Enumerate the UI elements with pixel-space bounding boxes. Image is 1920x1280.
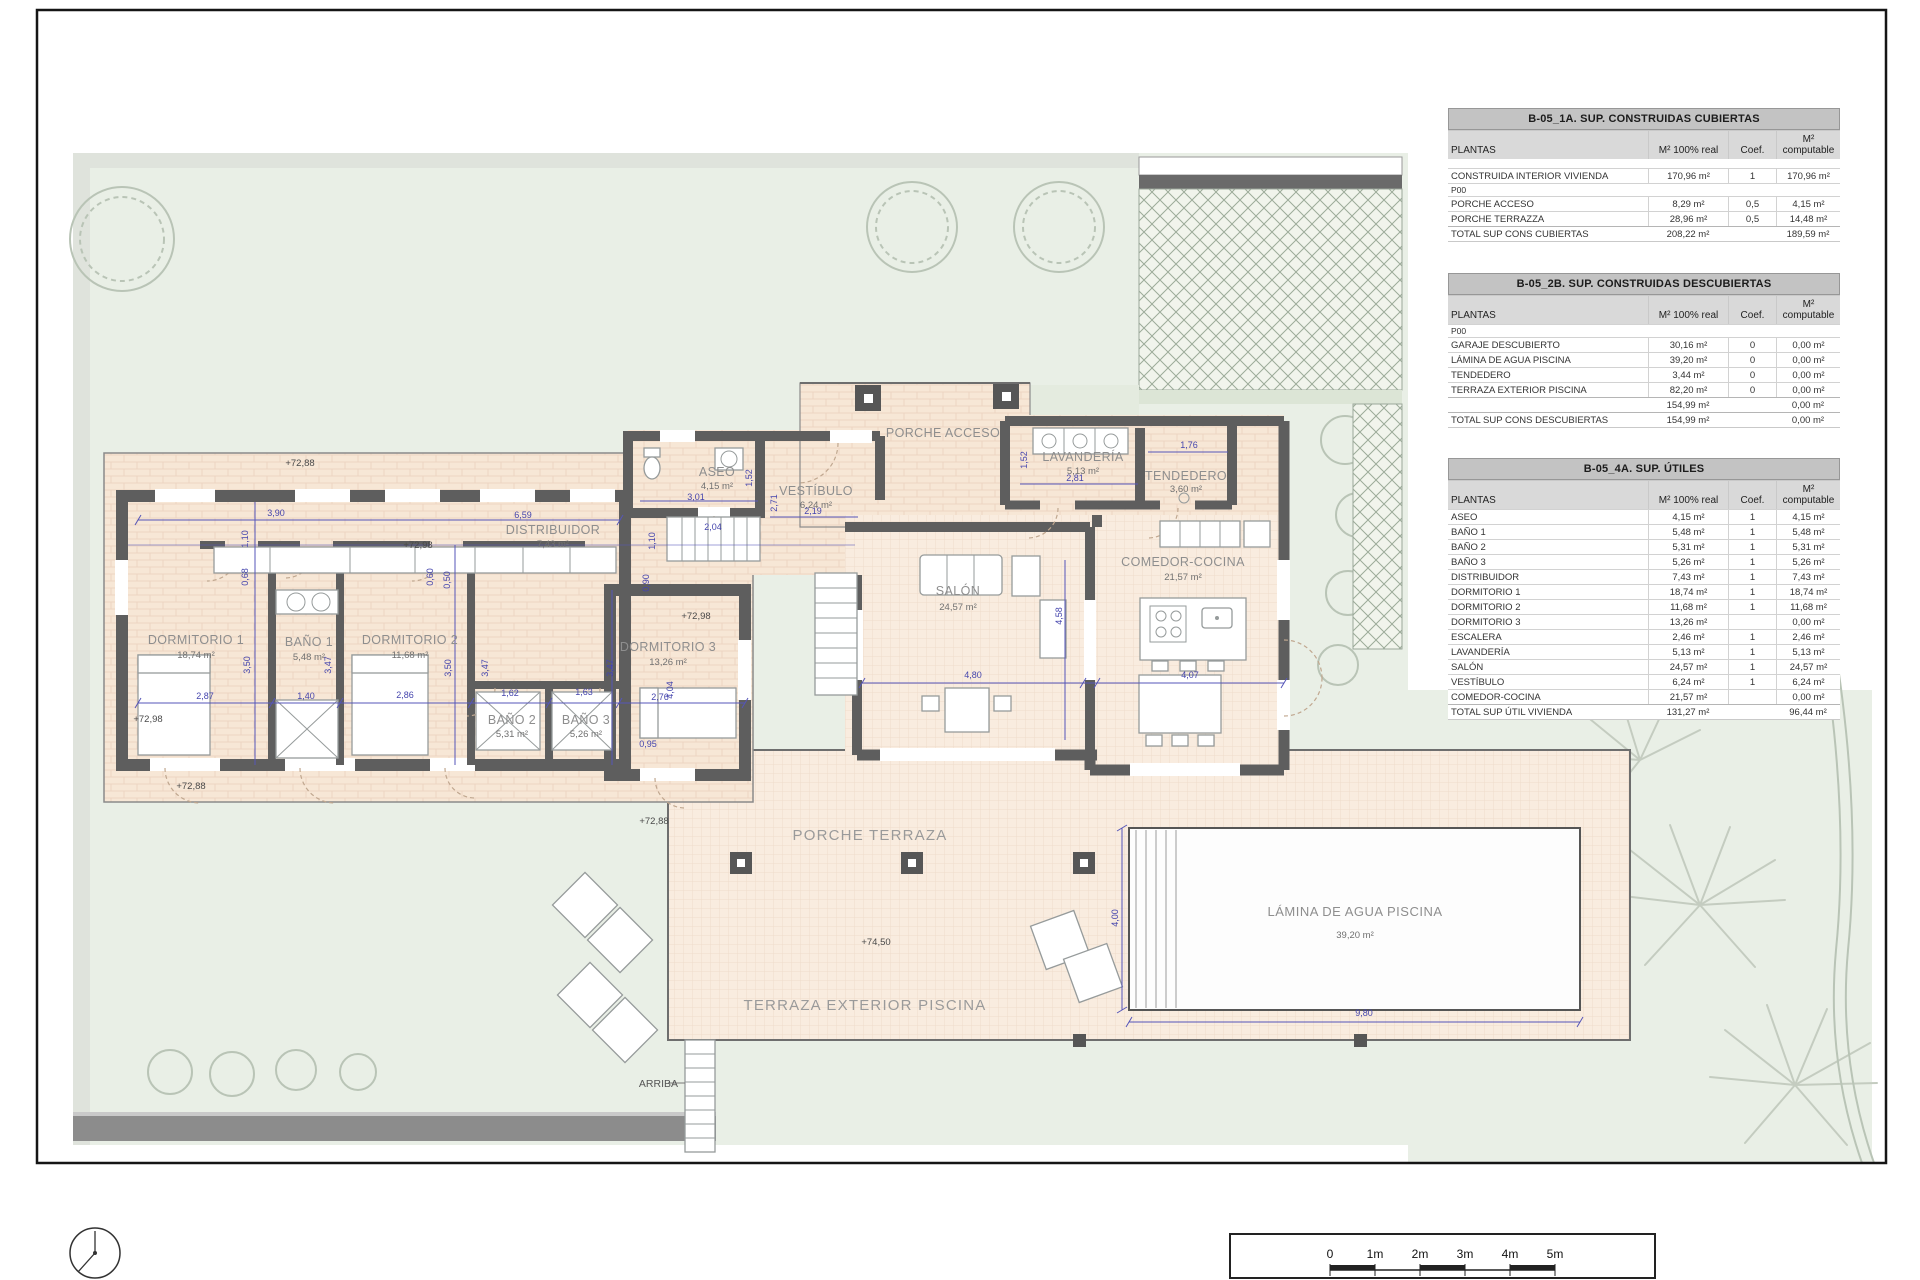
table-col-header: Coef.: [1728, 480, 1776, 509]
table-cell-label: [1448, 397, 1648, 412]
table-cell-coef: 1: [1728, 509, 1776, 524]
room-area-dormitorio2: 11,68 m²: [392, 650, 429, 661]
room-label-vestibulo: VESTÍBULO: [779, 483, 853, 498]
table-cell-label: BAÑO 1: [1448, 524, 1648, 539]
room-area-dormitorio3: 13,26 m²: [649, 657, 687, 668]
table-cell-real: 21,57 m²: [1648, 689, 1728, 704]
dim-label: 2,04: [704, 522, 722, 532]
table-cell-real: 131,27 m²: [1648, 704, 1728, 719]
architectural-sheet: DORMITORIO 1 18,74 m² BAÑO 1 5,48 m² DOR…: [0, 0, 1920, 1280]
table-cell-coef: 1: [1728, 659, 1776, 674]
level-label: +72,98: [681, 611, 710, 622]
table-cell-comp: 5,31 m²: [1776, 539, 1840, 554]
table-cell-coef: 0,5: [1728, 196, 1776, 211]
dim-label: 3,50: [443, 659, 453, 677]
dim-label: 1,52: [1019, 451, 1029, 469]
level-label: +72,98: [133, 714, 162, 725]
scale-bar: 0 1m 2m 3m 4m 5m: [1230, 1234, 1655, 1278]
table-col-header: M² 100% real: [1648, 295, 1728, 324]
table-cell-label: DISTRIBUIDOR: [1448, 569, 1648, 584]
table-cell-real: 39,20 m²: [1648, 352, 1728, 367]
table-body: PLANTAS M² 100% real Coef. M² computable…: [1448, 295, 1840, 428]
table-cell-coef: [1728, 397, 1776, 412]
table-cell-comp: 0,00 m²: [1776, 337, 1840, 352]
table-cell-label: ESCALERA: [1448, 629, 1648, 644]
table-spacer-row: [1448, 159, 1840, 168]
room-label-bano3: BAÑO 3: [562, 713, 610, 727]
table-cell-coef: 1: [1728, 599, 1776, 614]
table-cell-label: PORCHE ACCESO: [1448, 196, 1648, 211]
table-cell-coef: 1: [1728, 569, 1776, 584]
table-cell-comp: 0,00 m²: [1776, 352, 1840, 367]
room-label-tendedero: TENDEDERO: [1145, 469, 1227, 483]
dim-label: 1,10: [647, 532, 657, 550]
dim-label: 4,07: [1181, 670, 1199, 680]
table-cell-label: ASEO: [1448, 509, 1648, 524]
table-cell-real: 2,46 m²: [1648, 629, 1728, 644]
table-cell-comp: 18,74 m²: [1776, 584, 1840, 599]
table-cell-label: TOTAL SUP ÚTIL VIVIENDA: [1448, 704, 1648, 719]
table-col-header: M² computable: [1776, 480, 1840, 509]
table-cell-coef: 1: [1728, 644, 1776, 659]
dim-label: 3,47: [323, 656, 333, 674]
table-cell-label: LAVANDERÍA: [1448, 644, 1648, 659]
table-cell-label: PORCHE TERRAZZA: [1448, 211, 1648, 226]
room-area-bano1: 5,48 m²: [293, 652, 325, 663]
table-col-header: PLANTAS: [1448, 130, 1648, 159]
dim-label: 2,87: [196, 691, 214, 701]
room-label-bano2: BAÑO 2: [488, 713, 536, 727]
pool-area: 39,20 m²: [1336, 930, 1374, 941]
table-cell-real: 5,48 m²: [1648, 524, 1728, 539]
area-tables-panel: B-05_1A. SUP. CONSTRUIDAS CUBIERTAS PLAN…: [1448, 0, 1840, 760]
table-cell-comp: 6,24 m²: [1776, 674, 1840, 689]
table-cell-label: SALÓN: [1448, 659, 1648, 674]
table-body: PLANTAS M² 100% real Coef. M² computable…: [1448, 480, 1840, 720]
table-cell-coef: 1: [1728, 629, 1776, 644]
room-label-dormitorio1: DORMITORIO 1: [148, 633, 244, 647]
dim-label: 2,81: [1066, 473, 1084, 483]
table-cell-real: 208,22 m²: [1648, 226, 1728, 241]
room-area-bano2: 5,31 m²: [496, 729, 528, 740]
table-cell-comp: 5,48 m²: [1776, 524, 1840, 539]
scale-label-5m: 5m: [1547, 1247, 1564, 1261]
room-label-dormitorio2: DORMITORIO 2: [362, 633, 458, 647]
room-label-comedor: COMEDOR-COCINA: [1121, 555, 1245, 569]
table-cell-coef: [1728, 704, 1776, 719]
room-area-distribuidor: 7,43 m²: [537, 539, 569, 550]
table-cell-coef: [1728, 689, 1776, 704]
table-cell-label: BAÑO 2: [1448, 539, 1648, 554]
dim-label: 3,90: [267, 508, 285, 518]
room-label-bano1: BAÑO 1: [285, 635, 333, 649]
table-sup-construidas-descubiertas: B-05_2B. SUP. CONSTRUIDAS DESCUBIERTAS P…: [1448, 273, 1840, 428]
table-cell-comp: 5,13 m²: [1776, 644, 1840, 659]
dim-label: 3,47: [480, 659, 490, 677]
table-cell-label: DORMITORIO 2: [1448, 599, 1648, 614]
dim-label: 0,68: [240, 568, 250, 586]
table-cell-comp: 0,00 m²: [1776, 367, 1840, 382]
dim-label: 0,90: [641, 574, 651, 592]
table-cell-comp: 189,59 m²: [1776, 226, 1840, 241]
table-cell-coef: [1728, 412, 1776, 427]
table-sup-construidas-cubiertas: B-05_1A. SUP. CONSTRUIDAS CUBIERTAS PLAN…: [1448, 108, 1840, 242]
table-cell-label: COMEDOR-COCINA: [1448, 689, 1648, 704]
north-indicator: [70, 1228, 120, 1278]
table-cell-label: TOTAL SUP CONS DESCUBIERTAS: [1448, 412, 1648, 427]
table-cell-label: TENDEDERO: [1448, 367, 1648, 382]
dim-label: 4,04: [665, 681, 675, 699]
table-col-header: PLANTAS: [1448, 295, 1648, 324]
scale-label-1m: 1m: [1367, 1247, 1384, 1261]
table-col-header: M² computable: [1776, 130, 1840, 159]
table-cell-real: 5,13 m²: [1648, 644, 1728, 659]
table-cell-comp: 0,00 m²: [1776, 382, 1840, 397]
dim-label: 1,40: [297, 691, 315, 701]
table-cell-label: DORMITORIO 3: [1448, 614, 1648, 629]
table-cell-coef: 0: [1728, 382, 1776, 397]
table-cell-coef: 1: [1728, 524, 1776, 539]
table-title: B-05_4A. SUP. ÚTILES: [1448, 458, 1840, 480]
table-cell-real: 11,68 m²: [1648, 599, 1728, 614]
table-cell-comp: 5,26 m²: [1776, 554, 1840, 569]
table-cell-real: 28,96 m²: [1648, 211, 1728, 226]
table-cell-coef: 0,5: [1728, 211, 1776, 226]
scale-label-0: 0: [1327, 1247, 1334, 1261]
room-label-dormitorio3: DORMITORIO 3: [620, 640, 716, 654]
room-area-aseo: 4,15 m²: [701, 481, 733, 492]
dim-label: 0,95: [639, 739, 657, 749]
table-cell-label: GARAJE DESCUBIERTO: [1448, 337, 1648, 352]
table-cell-real: 24,57 m²: [1648, 659, 1728, 674]
table-title: B-05_1A. SUP. CONSTRUIDAS CUBIERTAS: [1448, 108, 1840, 130]
table-cell-coef: 1: [1728, 554, 1776, 569]
table-section-row: P00: [1448, 324, 1840, 337]
room-area-salon: 24,57 m²: [939, 602, 977, 613]
arriba-label: ARRIBA: [639, 1078, 678, 1090]
level-label: +72,98: [403, 540, 432, 551]
dim-label: 3,01: [687, 492, 705, 502]
dining-table-icon: [1139, 675, 1221, 746]
table-cell-real: 13,26 m²: [1648, 614, 1728, 629]
dim-label: 1,63: [575, 687, 593, 697]
dim-label: 2,19: [804, 506, 822, 516]
table-cell-comp: 14,48 m²: [1776, 211, 1840, 226]
dim-label: 3,50: [242, 656, 252, 674]
dim-label: 4,58: [1054, 607, 1064, 625]
dim-label: 3,47: [605, 659, 615, 677]
room-label-aseo: ASEO: [699, 465, 735, 479]
table-cell-comp: 96,44 m²: [1776, 704, 1840, 719]
table-cell-coef: 1: [1728, 168, 1776, 183]
dim-label: 4,80: [964, 670, 982, 680]
room-label-lavanderia: LAVANDERÍA: [1042, 449, 1124, 464]
table-cell-real: 3,44 m²: [1648, 367, 1728, 382]
room-area-comedor: 21,57 m²: [1164, 572, 1202, 583]
table-cell-real: 8,29 m²: [1648, 196, 1728, 211]
room-label-salon: SALÓN: [936, 583, 980, 598]
room-area-tendedero: 3,60 m²: [1170, 484, 1202, 495]
table-col-header: M² computable: [1776, 295, 1840, 324]
table-cell-coef: 1: [1728, 539, 1776, 554]
table-cell-label: TERRAZA EXTERIOR PISCINA: [1448, 382, 1648, 397]
dim-label: 1,76: [1180, 440, 1198, 450]
table-cell-real: 4,15 m²: [1648, 509, 1728, 524]
scale-label-4m: 4m: [1502, 1247, 1519, 1261]
dim-label: 9,80: [1355, 1008, 1373, 1018]
level-label: +72,88: [285, 458, 314, 469]
table-cell-real: 7,43 m²: [1648, 569, 1728, 584]
table-cell-comp: 11,68 m²: [1776, 599, 1840, 614]
dim-label: 0,50: [442, 571, 452, 589]
level-label: +74,50: [861, 937, 890, 948]
table-col-header: M² 100% real: [1648, 130, 1728, 159]
table-cell-coef: 0: [1728, 352, 1776, 367]
table-section-row: P00: [1448, 183, 1840, 196]
room-area-dormitorio1: 18,74 m²: [177, 650, 215, 661]
table-sup-utiles: B-05_4A. SUP. ÚTILES PLANTAS M² 100% rea…: [1448, 458, 1840, 720]
table-cell-comp: 0,00 m²: [1776, 689, 1840, 704]
table-cell-comp: 4,15 m²: [1776, 196, 1840, 211]
pool-label: LÁMINA DE AGUA PISCINA: [1268, 904, 1443, 919]
table-cell-coef: [1728, 614, 1776, 629]
table-cell-coef: 0: [1728, 337, 1776, 352]
dim-label: 0,60: [425, 568, 435, 586]
scale-label-2m: 2m: [1412, 1247, 1429, 1261]
table-cell-label: CONSTRUIDA INTERIOR VIVIENDA: [1448, 168, 1648, 183]
table-cell-label: BAÑO 3: [1448, 554, 1648, 569]
table-cell-real: 154,99 m²: [1648, 397, 1728, 412]
table-cell-label: TOTAL SUP CONS CUBIERTAS: [1448, 226, 1648, 241]
zone-label-porche-acceso: PORCHE ACCESO: [886, 426, 1000, 440]
table-cell-real: 82,20 m²: [1648, 382, 1728, 397]
table-col-header: Coef.: [1728, 130, 1776, 159]
table-cell-comp: 0,00 m²: [1776, 614, 1840, 629]
table-cell-coef: 1: [1728, 584, 1776, 599]
table-cell-label: DORMITORIO 1: [1448, 584, 1648, 599]
table-cell-label: VESTÍBULO: [1448, 674, 1648, 689]
zone-label-terraza-exterior: TERRAZA EXTERIOR PISCINA: [743, 997, 986, 1014]
table-cell-coef: 0: [1728, 367, 1776, 382]
table-cell-real: 18,74 m²: [1648, 584, 1728, 599]
table-cell-real: 154,99 m²: [1648, 412, 1728, 427]
room-area-bano3: 5,26 m²: [570, 729, 602, 740]
table-body: PLANTAS M² 100% real Coef. M² computable…: [1448, 130, 1840, 242]
table-col-header: PLANTAS: [1448, 480, 1648, 509]
table-cell-real: 5,26 m²: [1648, 554, 1728, 569]
table-cell-coef: [1728, 226, 1776, 241]
dim-label: 4,00: [1110, 909, 1120, 927]
zone-label-porche-terraza: PORCHE TERRAZA: [793, 827, 948, 844]
table-cell-real: 170,96 m²: [1648, 168, 1728, 183]
table-cell-comp: 24,57 m²: [1776, 659, 1840, 674]
table-cell-comp: 0,00 m²: [1776, 397, 1840, 412]
dim-label: 2,71: [769, 494, 779, 512]
table-cell-real: 6,24 m²: [1648, 674, 1728, 689]
dim-label: 1,52: [744, 469, 754, 487]
table-cell-real: 5,31 m²: [1648, 539, 1728, 554]
room-label-distribuidor: DISTRIBUIDOR: [506, 523, 600, 537]
level-label: +72,88: [176, 781, 205, 792]
table-cell-comp: 0,00 m²: [1776, 412, 1840, 427]
table-cell-real: 30,16 m²: [1648, 337, 1728, 352]
dim-label: 1,62: [501, 688, 519, 698]
table-cell-comp: 170,96 m²: [1776, 168, 1840, 183]
pool: [1129, 828, 1580, 1010]
table-cell-comp: 4,15 m²: [1776, 509, 1840, 524]
scale-label-3m: 3m: [1457, 1247, 1474, 1261]
table-col-header: M² 100% real: [1648, 480, 1728, 509]
table-title: B-05_2B. SUP. CONSTRUIDAS DESCUBIERTAS: [1448, 273, 1840, 295]
table-cell-comp: 7,43 m²: [1776, 569, 1840, 584]
table-col-header: Coef.: [1728, 295, 1776, 324]
table-cell-comp: 2,46 m²: [1776, 629, 1840, 644]
dim-label: 2,86: [396, 690, 414, 700]
table-cell-label: LÁMINA DE AGUA PISCINA: [1448, 352, 1648, 367]
toilet-icon: [644, 448, 660, 479]
dim-label: 6,59: [514, 510, 532, 520]
dim-label: 1,10: [240, 530, 250, 548]
table-cell-coef: 1: [1728, 674, 1776, 689]
level-label: +72,88: [639, 816, 668, 827]
